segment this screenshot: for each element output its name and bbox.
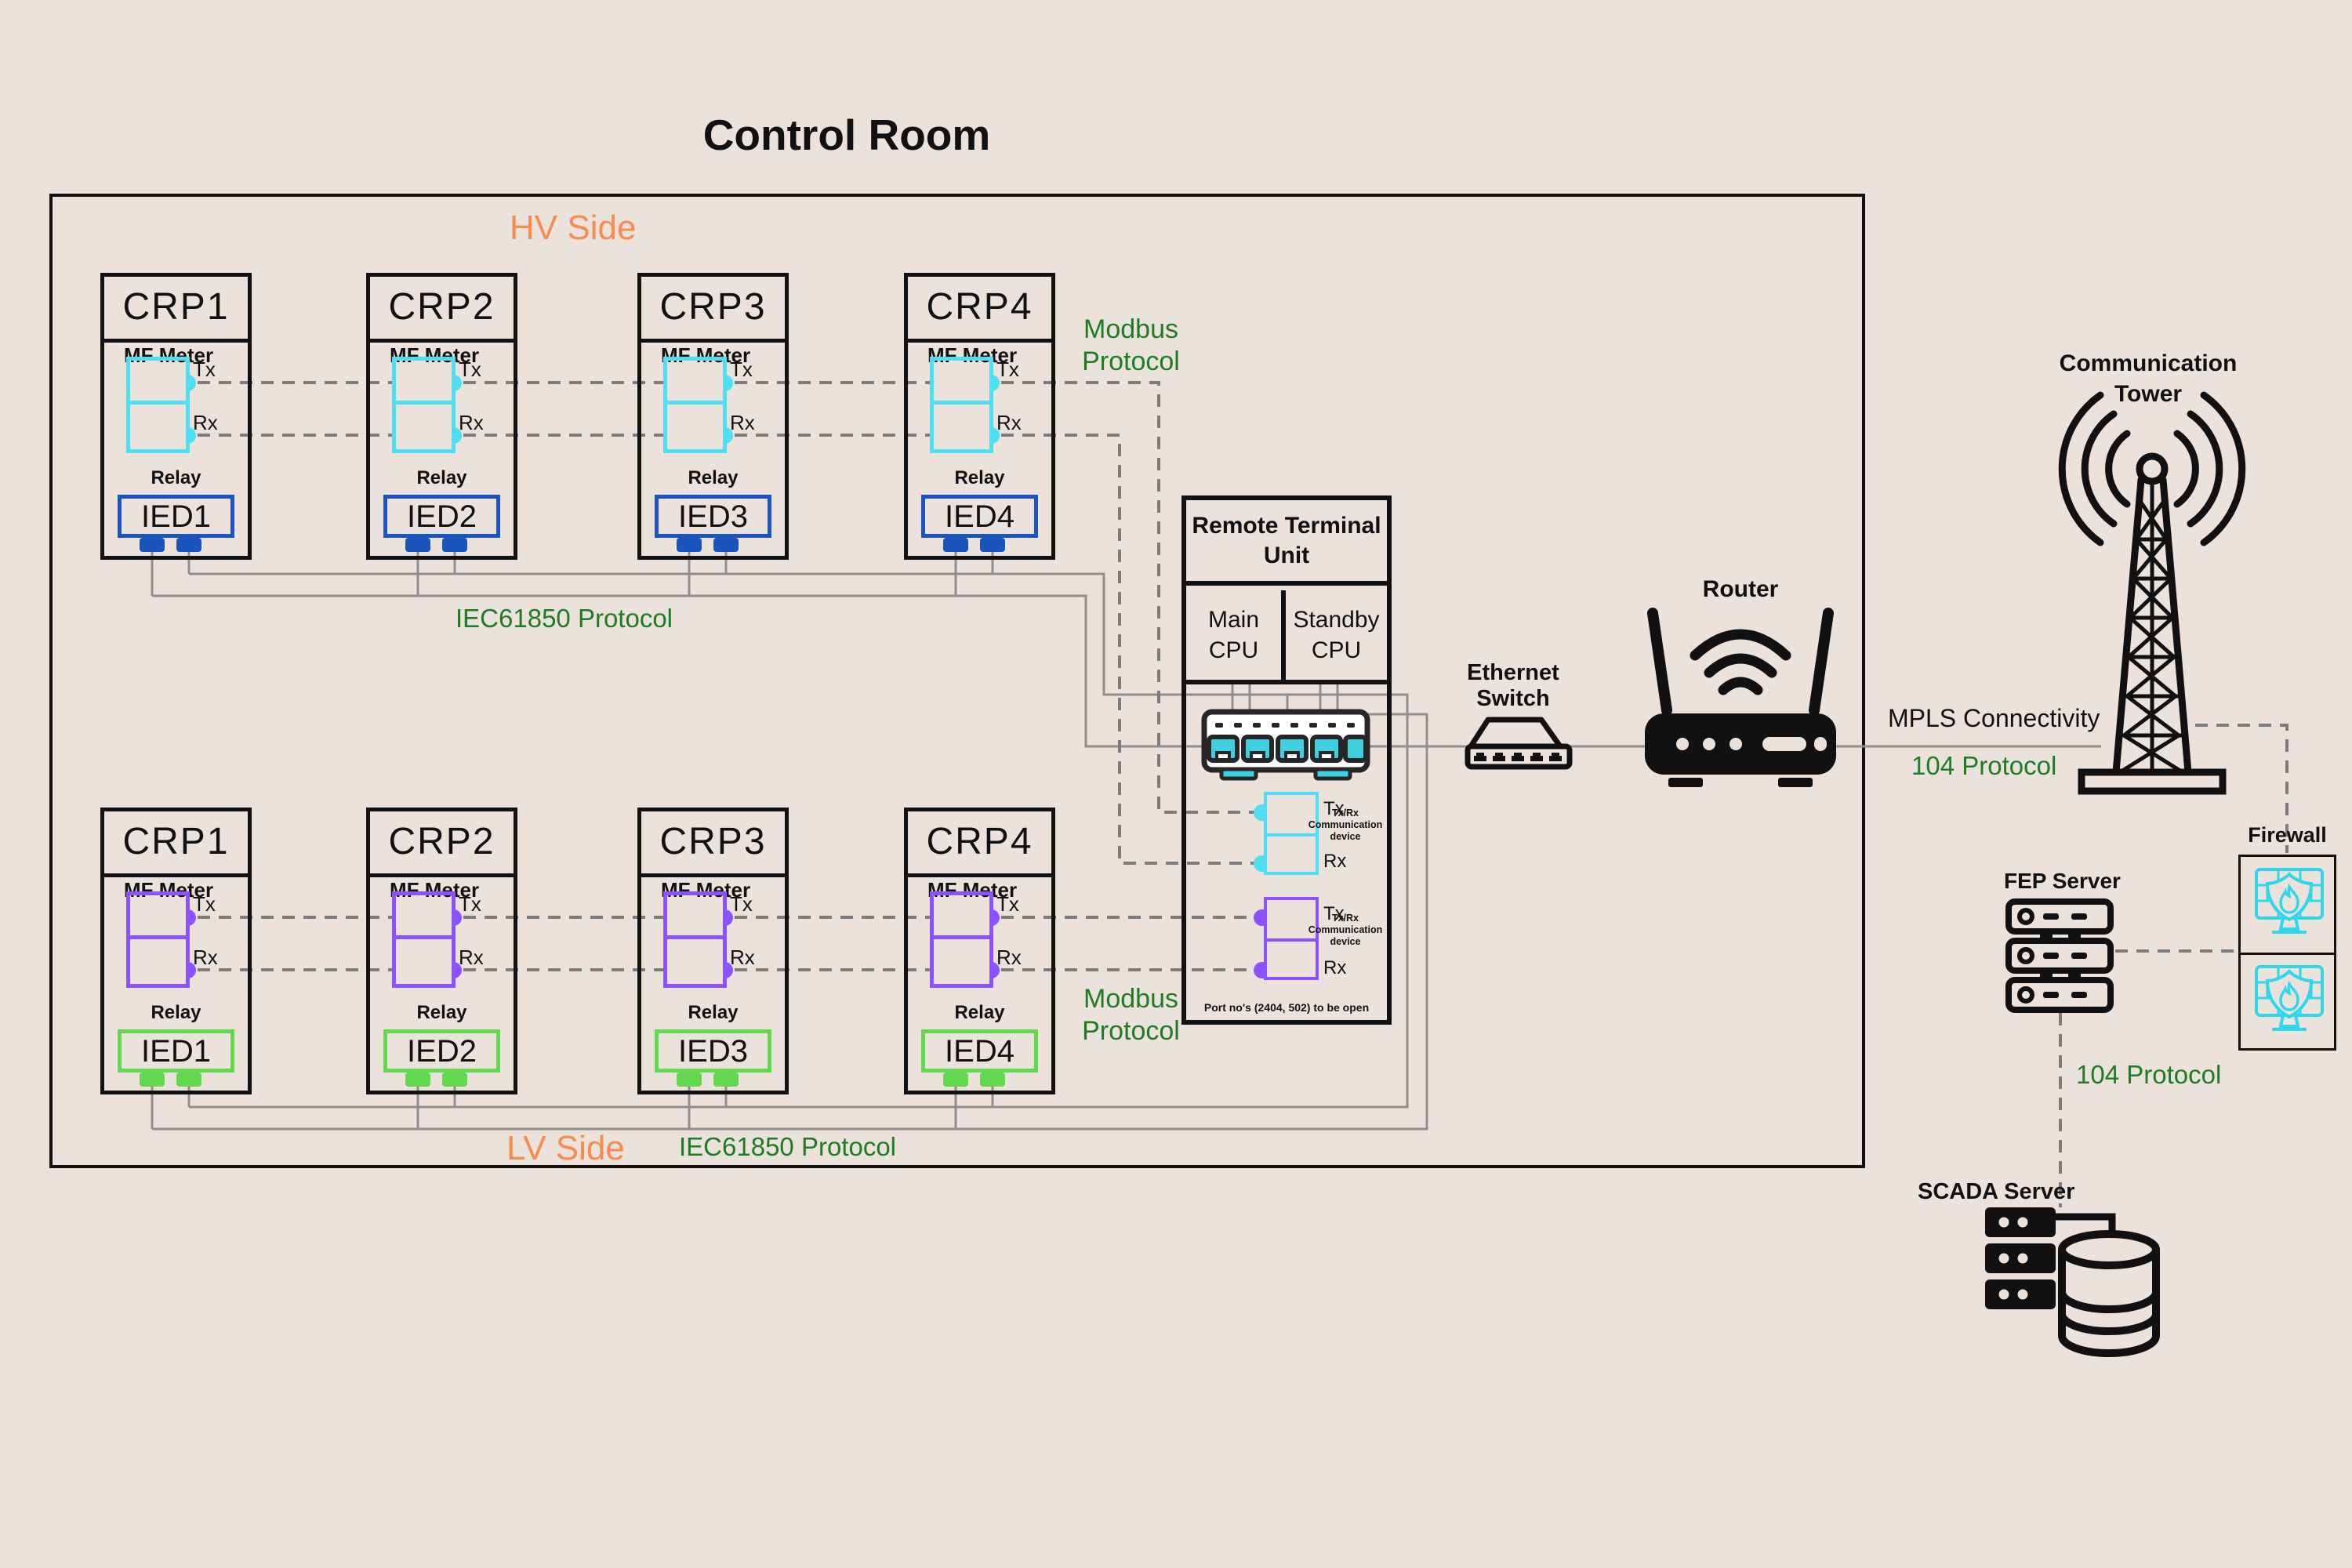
ethernet-jack-icon xyxy=(943,538,968,552)
tx-label: Tx xyxy=(996,892,1019,916)
ied-box: IED1 xyxy=(118,1029,234,1073)
mf-meter-box xyxy=(663,357,727,453)
rx-label: Rx xyxy=(459,946,484,970)
ied-box: IED3 xyxy=(655,495,771,538)
ethernet-jack-icon xyxy=(140,1073,165,1087)
ied-box: IED2 xyxy=(383,495,500,538)
firewall-icon xyxy=(2250,964,2328,1037)
ied-box: IED2 xyxy=(383,1029,500,1073)
crp-panel-hv-2: CRP2 MF Meter Tx Rx Relay IED2 xyxy=(366,273,517,560)
fep-server-label: FEP Server xyxy=(2004,869,2121,894)
ethernet-switch-label: Ethernet Switch xyxy=(1446,660,1580,713)
ied-box: IED1 xyxy=(118,495,234,538)
hv-iec61850-label: IEC61850 Protocol xyxy=(456,604,673,633)
ethernet-jack-icon xyxy=(677,538,702,552)
relay-label: Relay xyxy=(641,467,785,489)
mf-meter-box xyxy=(392,357,456,453)
crp-title: CRP4 xyxy=(908,277,1051,343)
rx-label: Rx xyxy=(996,946,1022,970)
mpls-connectivity-label: MPLS Connectivity xyxy=(1888,704,2100,733)
crp-panel-hv-1: CRP1 MF Meter Tx Rx Relay IED1 xyxy=(100,273,252,560)
tx-label: Tx xyxy=(459,358,481,382)
router-icon xyxy=(1640,599,1841,787)
hv-comm-device-label: Tx/Rx Communication device xyxy=(1305,808,1385,843)
tx-label: Tx xyxy=(730,358,753,382)
lv-comm-device-label: Tx/Rx Communication device xyxy=(1305,913,1385,948)
ethernet-jack-icon xyxy=(980,538,1005,552)
remote-terminal-unit: Remote Terminal Unit Main CPU Standby CP… xyxy=(1181,495,1392,1025)
ethernet-jack-icon xyxy=(713,1073,739,1087)
tx-label: Tx xyxy=(193,358,216,382)
rtu-title: Remote Terminal Unit xyxy=(1186,500,1387,586)
lv-modbus-label: Modbus Protocol xyxy=(1066,983,1196,1047)
rx-label: Rx xyxy=(730,411,755,435)
firewall-box xyxy=(2238,855,2336,1051)
relay-label: Relay xyxy=(370,1002,514,1024)
ethernet-jack-icon xyxy=(176,1073,201,1087)
rx-label: Rx xyxy=(459,411,484,435)
rx-port-icon xyxy=(1254,855,1264,872)
relay-label: Relay xyxy=(641,1002,785,1024)
ethernet-jack-icon xyxy=(405,538,430,552)
protocol-104-wan-label: 104 Protocol xyxy=(1911,751,2056,781)
tx-label: Tx xyxy=(193,892,216,916)
tx-label: Tx xyxy=(459,892,481,916)
communication-tower-icon xyxy=(2048,390,2256,798)
firewall-divider xyxy=(2241,953,2334,955)
rx-label: Rx xyxy=(193,946,218,970)
crp-panel-lv-2: CRP2 MF Meter Tx Rx Relay IED2 xyxy=(366,808,517,1094)
mf-meter-box xyxy=(392,891,456,988)
ethernet-jack-icon xyxy=(140,538,165,552)
ethernet-jack-icon xyxy=(677,1073,702,1087)
ethernet-jack-icon xyxy=(405,1073,430,1087)
relay-label: Relay xyxy=(908,1002,1051,1024)
mf-meter-box xyxy=(126,357,190,453)
rtu-cpu-row: Main CPU Standby CPU xyxy=(1186,590,1387,684)
ethernet-jack-icon xyxy=(713,538,739,552)
crp-title: CRP3 xyxy=(641,277,785,343)
crp-panel-hv-3: CRP3 MF Meter Tx Rx Relay IED3 xyxy=(637,273,789,560)
crp-title: CRP1 xyxy=(104,277,248,343)
ethernet-jack-icon xyxy=(943,1073,968,1087)
fep-server-icon xyxy=(2005,898,2115,1013)
ied-box: IED3 xyxy=(655,1029,771,1073)
rx-label: Rx xyxy=(1323,851,1346,873)
ied-box: IED4 xyxy=(921,1029,1038,1073)
relay-label: Relay xyxy=(104,467,248,489)
hv-modbus-label: Modbus Protocol xyxy=(1066,314,1196,378)
main-cpu: Main CPU xyxy=(1186,590,1286,680)
relay-label: Relay xyxy=(104,1002,248,1024)
firewall-icon xyxy=(2250,866,2328,940)
diagram-canvas: Control Room HV Side LV Side IEC61850 xyxy=(0,0,2352,1568)
rtu-port-note: Port no's (2404, 502) to be open xyxy=(1186,1001,1387,1014)
scada-server-icon xyxy=(1982,1204,2167,1366)
ethernet-jack-icon xyxy=(176,538,201,552)
ethernet-switch-icon xyxy=(1465,712,1574,771)
tx-port-icon xyxy=(1254,804,1264,821)
tx-label: Tx xyxy=(996,358,1019,382)
crp-panel-lv-4: CRP4 MF Meter Tx Rx Relay IED4 xyxy=(904,808,1055,1094)
crp-title: CRP3 xyxy=(641,811,785,877)
scada-server-label: SCADA Server xyxy=(1918,1179,2074,1205)
ethernet-jack-icon xyxy=(442,538,467,552)
crp-title: CRP4 xyxy=(908,811,1051,877)
tx-label: Tx xyxy=(730,892,753,916)
rx-label: Rx xyxy=(730,946,755,970)
rx-label: Rx xyxy=(193,411,218,435)
crp-panel-hv-4: CRP4 MF Meter Tx Rx Relay IED4 xyxy=(904,273,1055,560)
mf-meter-box xyxy=(930,891,993,988)
mf-meter-box xyxy=(930,357,993,453)
crp-title: CRP1 xyxy=(104,811,248,877)
lv-side-label: LV Side xyxy=(506,1129,625,1168)
crp-title: CRP2 xyxy=(370,277,514,343)
protocol-104-scada-label: 104 Protocol xyxy=(2076,1060,2221,1090)
hv-side-label: HV Side xyxy=(510,209,636,248)
ethernet-jack-icon xyxy=(980,1073,1005,1087)
crp-panel-lv-3: CRP3 MF Meter Tx Rx Relay IED3 xyxy=(637,808,789,1094)
relay-label: Relay xyxy=(370,467,514,489)
lv-iec61850-label: IEC61850 Protocol xyxy=(679,1132,896,1162)
firewall-label: Firewall xyxy=(2238,823,2336,848)
crp-title: CRP2 xyxy=(370,811,514,877)
ethernet-jack-icon xyxy=(442,1073,467,1087)
tx-port-icon xyxy=(1254,909,1264,926)
standby-cpu: Standby CPU xyxy=(1286,590,1387,680)
relay-label: Relay xyxy=(908,467,1051,489)
ied-box: IED4 xyxy=(921,495,1038,538)
rtu-switch-icon xyxy=(1201,709,1370,781)
crp-panel-lv-1: CRP1 MF Meter Tx Rx Relay IED1 xyxy=(100,808,252,1094)
rx-label: Rx xyxy=(1323,957,1346,979)
mf-meter-box xyxy=(126,891,190,988)
rx-port-icon xyxy=(1254,962,1264,978)
rx-label: Rx xyxy=(996,411,1022,435)
mf-meter-box xyxy=(663,891,727,988)
